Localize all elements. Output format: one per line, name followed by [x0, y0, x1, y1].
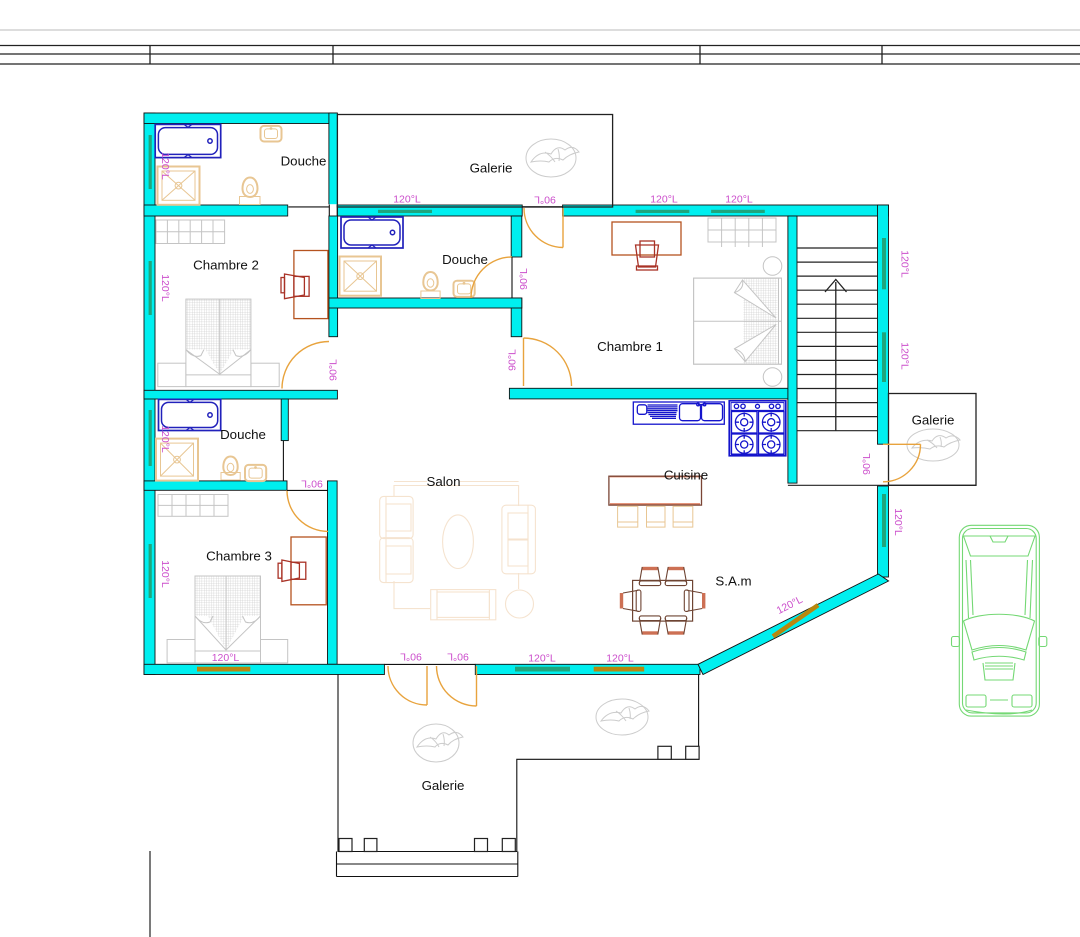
svg-text:120°L: 120°L	[899, 250, 911, 278]
svg-text:120°L: 120°L	[393, 194, 421, 206]
svg-text:Chambre 3: Chambre 3	[206, 549, 272, 564]
svg-text:90°L: 90°L	[507, 349, 519, 371]
svg-text:90°L: 90°L	[328, 359, 340, 381]
svg-text:Cuisine: Cuisine	[664, 468, 708, 483]
svg-text:90°L: 90°L	[861, 453, 873, 475]
svg-text:120°L: 120°L	[159, 152, 171, 180]
svg-text:120°L: 120°L	[212, 652, 240, 664]
svg-text:90°L: 90°L	[447, 651, 469, 663]
svg-text:Douche: Douche	[281, 154, 327, 169]
svg-text:Douche: Douche	[220, 427, 266, 442]
svg-text:S.A.m: S.A.m	[715, 574, 751, 589]
svg-text:120°L: 120°L	[725, 194, 753, 206]
svg-text:120°L: 120°L	[159, 425, 171, 453]
svg-text:120°L: 120°L	[892, 508, 904, 536]
svg-text:90°L: 90°L	[301, 478, 323, 490]
svg-text:Chambre 2: Chambre 2	[193, 258, 259, 273]
svg-text:Salon: Salon	[426, 474, 460, 489]
svg-text:90°L: 90°L	[534, 194, 556, 206]
svg-text:120°L: 120°L	[159, 274, 171, 302]
svg-text:90°L: 90°L	[518, 268, 530, 290]
svg-text:120°L: 120°L	[159, 560, 171, 588]
svg-text:Galerie: Galerie	[422, 778, 465, 793]
svg-text:90°L: 90°L	[400, 651, 422, 663]
svg-text:120°L: 120°L	[528, 653, 556, 665]
svg-text:120°L: 120°L	[650, 194, 678, 206]
svg-text:Galerie: Galerie	[912, 413, 955, 428]
svg-text:120°L: 120°L	[899, 342, 911, 370]
svg-text:Galerie: Galerie	[470, 161, 513, 176]
svg-text:Chambre 1: Chambre 1	[597, 339, 663, 354]
svg-text:Douche: Douche	[442, 252, 488, 267]
svg-text:120°L: 120°L	[606, 653, 634, 665]
